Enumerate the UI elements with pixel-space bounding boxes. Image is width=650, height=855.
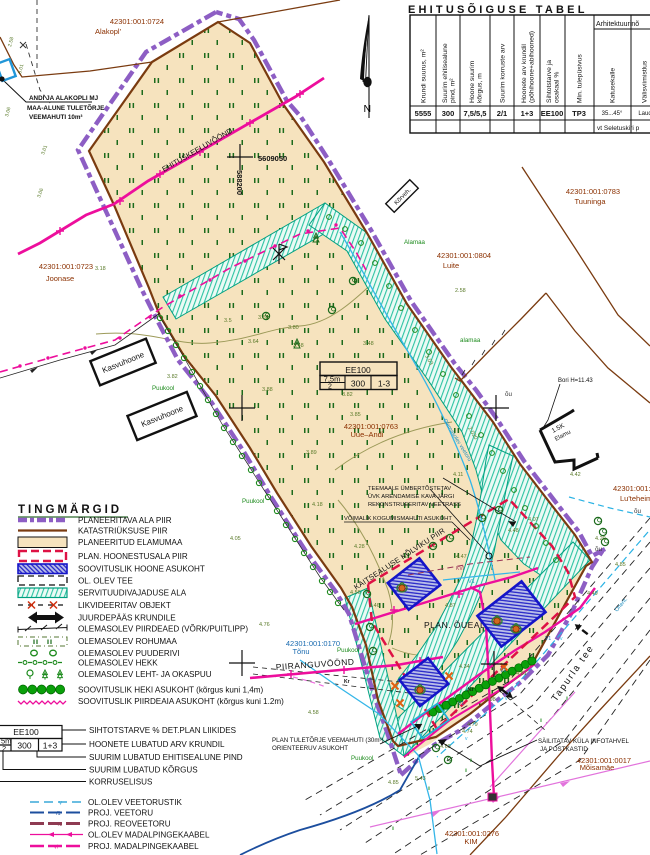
svg-text:Sihtotstarve ja: Sihtotstarve ja xyxy=(546,60,553,103)
svg-text:2/1: 2/1 xyxy=(497,109,507,118)
svg-text:4.49: 4.49 xyxy=(587,591,598,597)
svg-text:4.79: 4.79 xyxy=(467,722,478,728)
svg-text:EE100: EE100 xyxy=(345,365,371,375)
svg-text:õu: õu xyxy=(595,546,602,553)
svg-text:õu: õu xyxy=(634,508,641,515)
svg-text:Mõisamäe: Mõisamäe xyxy=(580,763,615,772)
svg-text:3.51: 3.51 xyxy=(258,315,269,321)
svg-text:4.05: 4.05 xyxy=(230,536,241,542)
svg-text:300: 300 xyxy=(351,379,365,389)
svg-text:4.81: 4.81 xyxy=(516,671,527,677)
svg-text:4.87: 4.87 xyxy=(445,603,456,609)
svg-text:PLAN TULETÕRJE VEEMAHUTI (30m³: PLAN TULETÕRJE VEEMAHUTI (30m³) xyxy=(272,737,384,744)
svg-text:5555: 5555 xyxy=(415,109,432,118)
svg-text:3.64: 3.64 xyxy=(248,339,259,345)
svg-text:SUURIM LUBATUD KÕRGUS: SUURIM LUBATUD KÕRGUS xyxy=(89,766,198,775)
svg-text:alamaa: alamaa xyxy=(460,337,481,344)
svg-text:Bori H=11.43: Bori H=11.43 xyxy=(558,378,593,384)
svg-text:KORRUSELISUS: KORRUSELISUS xyxy=(89,778,153,787)
svg-text:LIKVIDEERITAV OBJEKT: LIKVIDEERITAV OBJEKT xyxy=(78,601,171,610)
svg-text:PLAN. HOONESTUSALA PIIR: PLAN. HOONESTUSALA PIIR xyxy=(78,552,188,561)
svg-text:4.85: 4.85 xyxy=(615,562,626,568)
svg-text:ANDI JA ALAKOPLI MJ: ANDI JA ALAKOPLI MJ xyxy=(29,95,99,102)
svg-text:TEEMAALE ÜMBERTÕSTETAV: TEEMAALE ÜMBERTÕSTETAV xyxy=(368,485,451,492)
svg-text:3.89: 3.89 xyxy=(306,450,317,456)
svg-text:4.47: 4.47 xyxy=(456,554,467,560)
svg-text:õu: õu xyxy=(505,391,512,398)
svg-text:OLEMASOLEV HEKK: OLEMASOLEV HEKK xyxy=(78,659,158,668)
svg-text:4.56: 4.56 xyxy=(350,590,361,596)
svg-text:Suurim ehitisealune: Suurim ehitisealune xyxy=(442,43,449,103)
svg-text:HOONETE LUBATUD ARV KRUNDIL: HOONETE LUBATUD ARV KRUNDIL xyxy=(89,740,225,749)
svg-text:35...45°: 35...45° xyxy=(602,111,623,117)
svg-text:7,5/5,5: 7,5/5,5 xyxy=(464,109,487,118)
svg-text:OL. OLEV TEE: OL. OLEV TEE xyxy=(78,577,133,586)
svg-text:4.20: 4.20 xyxy=(595,536,606,542)
svg-text:V1: V1 xyxy=(500,668,506,674)
svg-text:Tuuninga: Tuuninga xyxy=(575,197,607,206)
svg-text:Laud: Laud xyxy=(638,111,650,117)
svg-text:JA POSTKASTID: JA POSTKASTID xyxy=(540,746,588,753)
svg-text:vi: vi xyxy=(54,845,58,851)
svg-text:42301:001:0804: 42301:001:0804 xyxy=(437,251,491,260)
svg-text:Arhitektuurinõ: Arhitektuurinõ xyxy=(596,21,639,28)
svg-text:Puukool: Puukool xyxy=(351,755,373,762)
svg-text:<1: <1 xyxy=(56,822,62,828)
svg-text:kõrgus, m: kõrgus, m xyxy=(476,73,483,103)
svg-text:3.85: 3.85 xyxy=(350,412,361,418)
svg-text:VEEMAHUTI 10m³: VEEMAHUTI 10m³ xyxy=(29,114,83,121)
svg-text:Puukool: Puukool xyxy=(152,385,174,392)
svg-text:OL.OLEV MADALPINGEKAABEL: OL.OLEV MADALPINGEKAABEL xyxy=(88,831,210,840)
svg-text:Min. tulepüsivus: Min. tulepüsivus xyxy=(577,54,584,103)
svg-text:Luite: Luite xyxy=(443,261,459,270)
svg-text:Alakopl': Alakopl' xyxy=(95,27,122,36)
svg-text:ÜVK ARENDAMISE KAVA JÄRGI: ÜVK ARENDAMISE KAVA JÄRGI xyxy=(368,493,455,500)
svg-text:Välisviimistlus: Välisviimistlus xyxy=(642,60,649,103)
svg-text:PROJ. VEETORU: PROJ. VEETORU xyxy=(88,809,153,818)
svg-text:42301:001:0724: 42301:001:0724 xyxy=(110,17,164,26)
svg-text:1+3: 1+3 xyxy=(43,741,58,751)
svg-text:Puukool: Puukool xyxy=(337,647,359,654)
svg-text:3.80: 3.80 xyxy=(288,325,299,331)
svg-text:Kr: Kr xyxy=(468,687,474,693)
svg-text:PROJ. REOVEETORU: PROJ. REOVEETORU xyxy=(88,820,171,829)
svg-text:REKONSTRUEERITAV VEETRASS: REKONSTRUEERITAV VEETRASS xyxy=(368,502,461,508)
svg-text:3.48: 3.48 xyxy=(293,343,304,349)
svg-text:3.82: 3.82 xyxy=(342,392,353,398)
svg-text:Tõnu: Tõnu xyxy=(292,647,309,656)
svg-text:V1: V1 xyxy=(458,701,464,707)
svg-text:4.48: 4.48 xyxy=(508,528,519,534)
svg-text:SIHTOTSTARVE % DET.PLAN LIIKID: SIHTOTSTARVE % DET.PLAN LIIKIDES xyxy=(89,726,237,735)
svg-text:2: 2 xyxy=(328,384,332,391)
svg-text:SÄILITATAV KÜLA INFOTAHVEL: SÄILITATAV KÜLA INFOTAHVEL xyxy=(538,738,629,745)
svg-text:42301:001:0783: 42301:001:0783 xyxy=(566,187,620,196)
svg-text:KVl: KVl xyxy=(456,566,464,572)
svg-text:VÕIMALIK KOGUMISMAHUTI ASUKOHT: VÕIMALIK KOGUMISMAHUTI ASUKOHT xyxy=(344,515,452,522)
svg-text:EE100: EE100 xyxy=(13,727,39,737)
svg-text:OL.OLEV VEETORUSTIK: OL.OLEV VEETORUSTIK xyxy=(88,798,182,807)
svg-text:3.18: 3.18 xyxy=(95,266,106,272)
svg-text:TINGMÄRGID: TINGMÄRGID xyxy=(18,503,122,516)
svg-text:Krundi suurus, m²: Krundi suurus, m² xyxy=(421,49,428,103)
svg-text:JUURDEPÄÄS KRUNDILE: JUURDEPÄÄS KRUNDILE xyxy=(78,614,176,623)
svg-text:PLANEERITAVA ALA PIIR: PLANEERITAVA ALA PIIR xyxy=(78,516,172,525)
svg-text:2.58: 2.58 xyxy=(455,288,466,294)
svg-text:Suurim korruste arv: Suurim korruste arv xyxy=(500,43,507,103)
svg-text:42301:001:: 42301:001: xyxy=(613,484,650,493)
svg-text:Joonase: Joonase xyxy=(46,274,74,283)
svg-text:ORIENTEERUV ASUKOHT: ORIENTEERUV ASUKOHT xyxy=(272,745,348,752)
svg-text:3.82: 3.82 xyxy=(167,374,178,380)
svg-text:Puukool: Puukool xyxy=(242,498,264,505)
svg-text:EHITUSÕIGUSE TABEL: EHITUSÕIGUSE TABEL xyxy=(408,3,588,16)
svg-text:4.58: 4.58 xyxy=(308,710,319,716)
svg-text:42301:001:0723: 42301:001:0723 xyxy=(39,262,93,271)
svg-text:Hoonete arv krundil: Hoonete arv krundil xyxy=(521,44,528,103)
svg-text:4.28: 4.28 xyxy=(354,544,365,550)
svg-text:1+3: 1+3 xyxy=(521,109,534,118)
svg-text:KATASTRIÜKSUSE PIIR: KATASTRIÜKSUSE PIIR xyxy=(78,527,168,536)
svg-text:vt Seletuskiri p: vt Seletuskiri p xyxy=(597,125,640,132)
svg-text:3.5: 3.5 xyxy=(224,318,232,324)
svg-text:7,5m: 7,5m xyxy=(324,375,341,384)
svg-text:v: v xyxy=(59,801,62,807)
svg-text:OLEMASOLEV PUUDERIVI: OLEMASOLEV PUUDERIVI xyxy=(78,649,180,658)
svg-text:ii: ii xyxy=(470,758,472,764)
svg-text:4.07: 4.07 xyxy=(528,517,539,523)
svg-text:4.74: 4.74 xyxy=(462,729,473,735)
svg-text:PLANEERITUD ELAMUMAA: PLANEERITUD ELAMUMAA xyxy=(78,538,183,547)
svg-text:OLEMASOLEV PIIRDEAED (VÕRK/PUI: OLEMASOLEV PIIRDEAED (VÕRK/PUITLIPP) xyxy=(78,625,248,634)
svg-text:Katusekalle: Katusekalle xyxy=(610,68,617,103)
svg-text:4.42: 4.42 xyxy=(570,472,581,478)
svg-text:SOOVITUSLIK HEKI ASUKOHT (kõrg: SOOVITUSLIK HEKI ASUKOHT (kõrgus kuni 1,… xyxy=(78,686,263,695)
svg-text:Uue–Andi: Uue–Andi xyxy=(351,430,384,439)
svg-text:OLEMASOLEV ROHUMAA: OLEMASOLEV ROHUMAA xyxy=(78,637,178,646)
svg-text:osakaal %: osakaal % xyxy=(553,72,560,103)
svg-text:MAA-ALUNE TULETÕRJE: MAA-ALUNE TULETÕRJE xyxy=(27,103,104,112)
svg-text:300: 300 xyxy=(17,741,31,751)
svg-text:Lu'teheim: Lu'teheim xyxy=(620,494,650,503)
svg-text:Alamaa: Alamaa xyxy=(404,239,426,246)
svg-text:V1: V1 xyxy=(545,636,551,642)
svg-text:ii: ii xyxy=(428,786,430,792)
svg-text:4.18: 4.18 xyxy=(312,502,323,508)
svg-text:4.76: 4.76 xyxy=(259,622,270,628)
svg-text:300: 300 xyxy=(442,109,455,118)
svg-text:ii: ii xyxy=(392,826,394,832)
svg-text:4.11: 4.11 xyxy=(453,472,463,478)
svg-text:SUURIM LUBATUD EHITISEALUNE PI: SUURIM LUBATUD EHITISEALUNE PIND xyxy=(89,753,243,762)
svg-text:KIM: KIM xyxy=(464,837,477,846)
svg-text:SERVITUUDIVAJADUSE ALA: SERVITUUDIVAJADUSE ALA xyxy=(78,589,187,598)
svg-text:OLEMASOLEV LEHT- JA OKASPUU: OLEMASOLEV LEHT- JA OKASPUU xyxy=(78,670,212,679)
svg-text:4.34: 4.34 xyxy=(459,664,470,670)
svg-text:3.88: 3.88 xyxy=(262,387,273,393)
svg-text:5609050: 5609050 xyxy=(258,154,287,163)
svg-text:(põhihoone+abihooned): (põhihoone+abihooned) xyxy=(528,31,535,103)
svg-text:Hoone suurim: Hoone suurim xyxy=(469,60,476,103)
svg-text:V1: V1 xyxy=(468,579,475,585)
svg-text:/1: /1 xyxy=(56,811,61,817)
svg-text:SOOVITUSLIK HOONE ASUKOHT: SOOVITUSLIK HOONE ASUKOHT xyxy=(78,565,205,574)
svg-text:pind, m²: pind, m² xyxy=(449,78,456,103)
svg-text:1-3: 1-3 xyxy=(378,379,391,389)
svg-text:EE100: EE100 xyxy=(541,109,564,118)
svg-text:3.48: 3.48 xyxy=(363,341,374,347)
svg-text:Kr: Kr xyxy=(344,679,350,685)
svg-text:PROJ. MADALPINGEKAABEL: PROJ. MADALPINGEKAABEL xyxy=(88,842,199,851)
svg-text:4.46: 4.46 xyxy=(369,603,380,609)
svg-text:4.85: 4.85 xyxy=(388,780,399,786)
svg-text:4.98: 4.98 xyxy=(485,697,496,703)
svg-text:ii: ii xyxy=(566,696,568,702)
svg-text:5.43: 5.43 xyxy=(415,776,426,782)
svg-text:TP3: TP3 xyxy=(572,109,586,118)
svg-text:ii: ii xyxy=(540,718,542,724)
svg-text:SOOVITUSLIK PIIRDEAIA ASUKOHT: SOOVITUSLIK PIIRDEAIA ASUKOHT (kõrgus ku… xyxy=(78,697,284,706)
svg-text:N: N xyxy=(364,103,372,115)
svg-text:ii: ii xyxy=(465,768,467,774)
svg-text:588200: 588200 xyxy=(235,170,244,195)
